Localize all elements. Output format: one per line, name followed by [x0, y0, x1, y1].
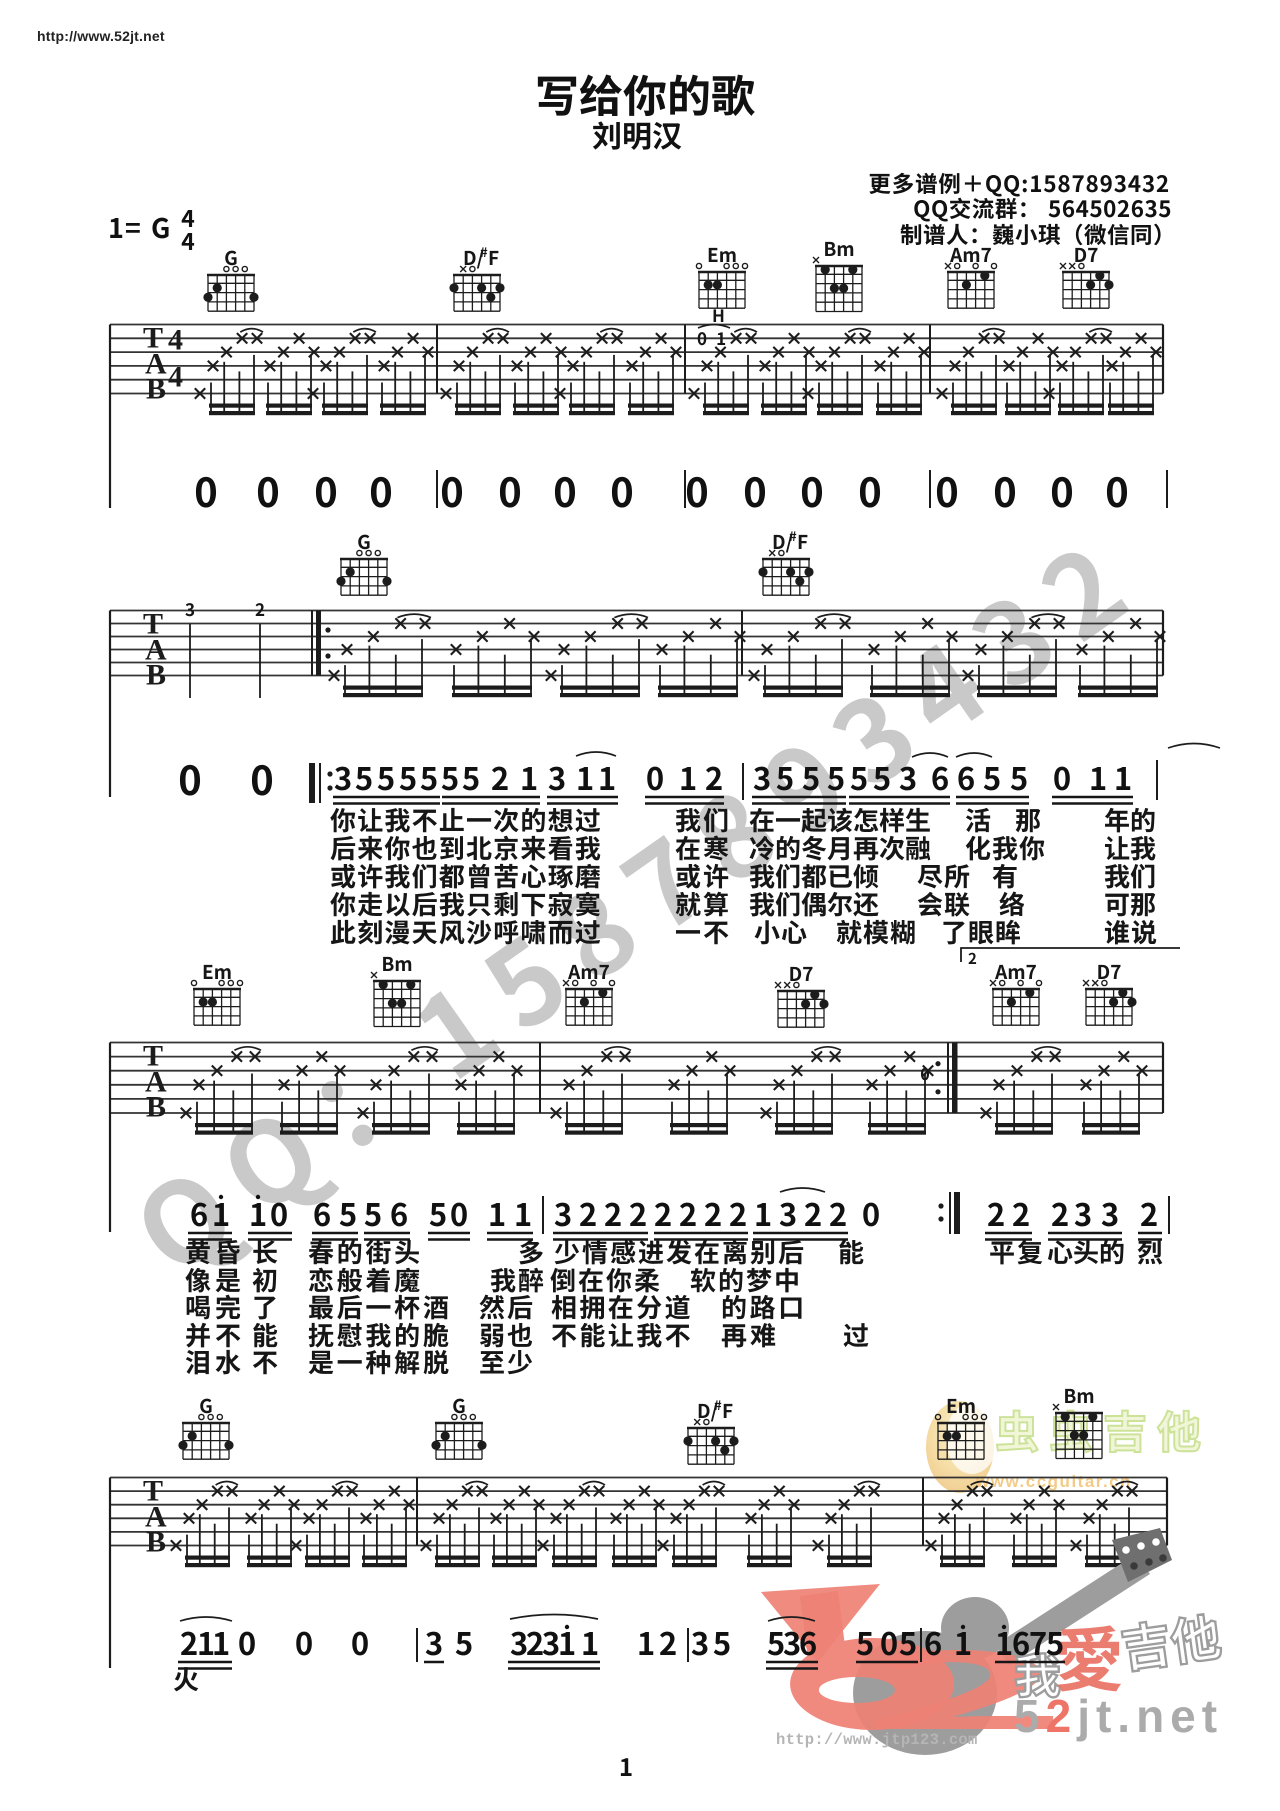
svg-text:4: 4 [168, 324, 183, 357]
svg-text:B: B [146, 1091, 166, 1124]
svg-text:B: B [146, 373, 166, 406]
svg-text:4: 4 [168, 361, 183, 394]
svg-text:B: B [146, 1526, 166, 1559]
svg-text:B: B [146, 659, 166, 692]
svg-text:http://www.jtp123.com: http://www.jtp123.com [776, 1731, 978, 1749]
svg-text:http://www.52jt.net: http://www.52jt.net [37, 28, 165, 44]
svg-text:52jt.net: 52jt.net [1014, 1690, 1223, 1742]
svg-text:www.ccguitar.cn: www.ccguitar.cn [975, 1472, 1132, 1491]
